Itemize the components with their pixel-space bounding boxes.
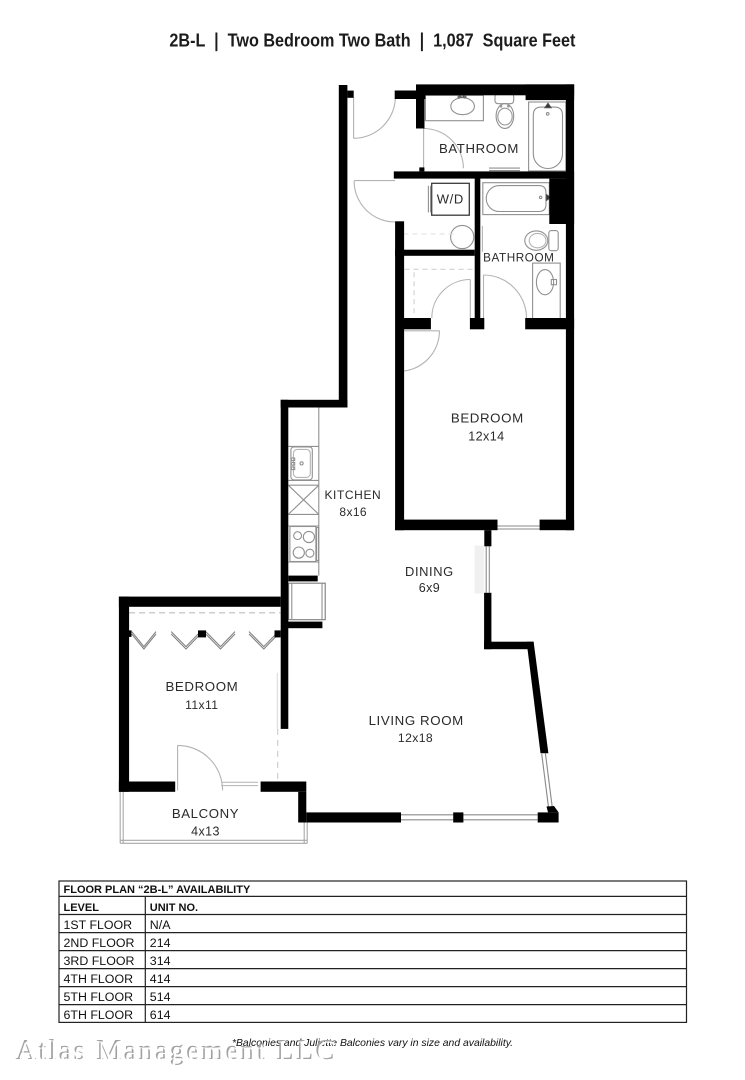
svg-text:Atlas Management LLC: Atlas Management LLC [17,1037,338,1068]
svg-text:FLOOR PLAN “2B-L” AVAILABILITY: FLOOR PLAN “2B-L” AVAILABILITY [64,884,251,896]
svg-text:BATHROOM: BATHROOM [439,141,519,156]
svg-text:LIVING ROOM: LIVING ROOM [369,713,464,728]
svg-text:6TH FLOOR: 6TH FLOOR [64,1008,134,1022]
svg-text:214: 214 [150,936,171,950]
svg-text:BATHROOM: BATHROOM [483,251,554,264]
svg-text:BEDROOM: BEDROOM [451,411,524,426]
svg-text:514: 514 [150,990,171,1004]
svg-text:614: 614 [150,1008,171,1022]
svg-text:DINING: DINING [405,564,454,579]
svg-text:3RD FLOOR: 3RD FLOOR [64,954,135,968]
svg-text:UNIT NO.: UNIT NO. [150,902,198,914]
svg-text:12x14: 12x14 [468,429,504,443]
svg-text:314: 314 [150,954,171,968]
svg-text:2B-L ❘ Two Bedroom Two Bath ❘: 2B-L ❘ Two Bedroom Two Bath ❘ 1,087 Squa… [169,31,575,52]
svg-text:2ND FLOOR: 2ND FLOOR [64,936,135,950]
svg-text:5TH FLOOR: 5TH FLOOR [64,990,134,1004]
svg-text:W/D: W/D [437,191,464,206]
svg-text:414: 414 [150,972,171,986]
svg-text:LEVEL: LEVEL [64,902,100,914]
svg-text:4TH FLOOR: 4TH FLOOR [64,972,134,986]
svg-text:6x9: 6x9 [419,581,440,595]
svg-text:BEDROOM: BEDROOM [165,679,238,694]
svg-text:BALCONY: BALCONY [172,806,239,821]
svg-text:4x13: 4x13 [191,824,220,838]
svg-text:12x18: 12x18 [398,731,433,745]
svg-text:11x11: 11x11 [185,698,218,712]
svg-text:N/A: N/A [150,918,171,932]
svg-text:8x16: 8x16 [339,505,367,519]
svg-text:KITCHEN: KITCHEN [324,488,381,502]
svg-text:1ST FLOOR: 1ST FLOOR [64,918,133,932]
